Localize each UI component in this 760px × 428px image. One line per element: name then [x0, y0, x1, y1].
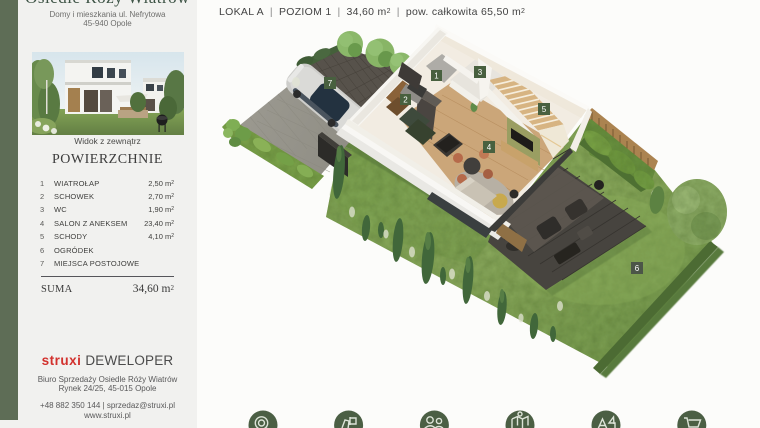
- svg-text:2: 2: [403, 96, 408, 105]
- svg-text:3: 3: [478, 68, 483, 77]
- svg-text:1: 1: [434, 72, 439, 81]
- svg-text:5: 5: [542, 105, 547, 114]
- svg-text:6: 6: [635, 264, 640, 273]
- svg-text:4: 4: [487, 143, 492, 152]
- svg-text:7: 7: [328, 79, 333, 88]
